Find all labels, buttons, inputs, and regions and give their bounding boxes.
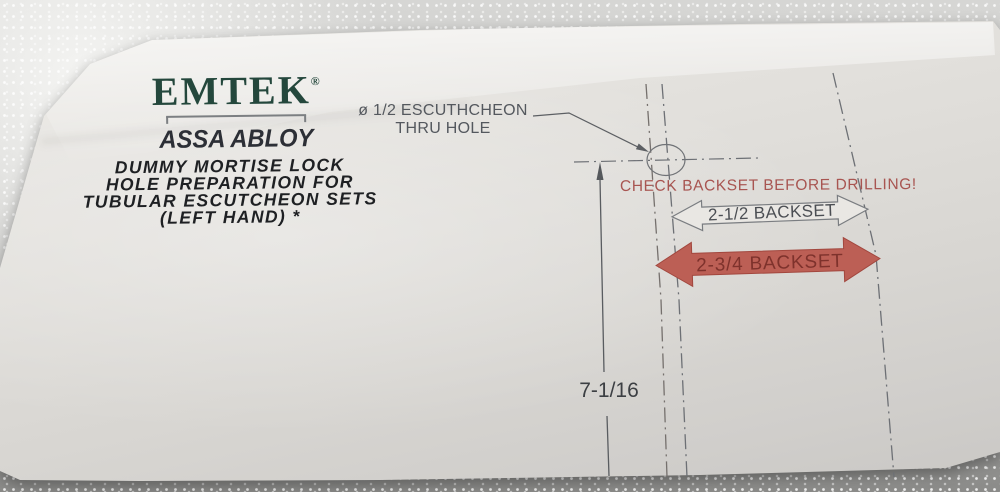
registered-mark: ® (311, 74, 320, 88)
dimension-arrowhead (597, 162, 604, 180)
assa-abloy-logo: ASSA ABLOY (145, 125, 328, 153)
emtek-logo: EMTEK® (139, 61, 332, 112)
door-edge-line (833, 73, 894, 477)
vertical-dimension-label: 7-1/16 (573, 379, 645, 403)
thru-hole-callout: ø 1/2 ESCUTHCHEON THRU HOLE (352, 102, 534, 138)
callout-leader-line (533, 113, 642, 149)
sheet-title: DUMMY MORTISE LOCK HOLE PREPARATION FOR … (52, 156, 409, 228)
dimension-line (600, 179, 609, 476)
emtek-logo-text: EMTEK (152, 67, 311, 114)
leader-arrowhead (636, 144, 649, 153)
brand-block: EMTEK® ASSA ABLOY (139, 61, 332, 153)
hole-centerline (574, 158, 758, 162)
callout-line-1: ø 1/2 ESCUTHCHEON (352, 102, 534, 120)
photo-of-drilling-template: EMTEK® ASSA ABLOY DUMMY MORTISE LOCK HOL… (0, 0, 1000, 492)
centerline-left (646, 84, 667, 477)
backset-warning-text: CHECK BACKSET BEFORE DRILLING! (620, 176, 920, 196)
callout-line-2: THRU HOLE (352, 120, 534, 138)
